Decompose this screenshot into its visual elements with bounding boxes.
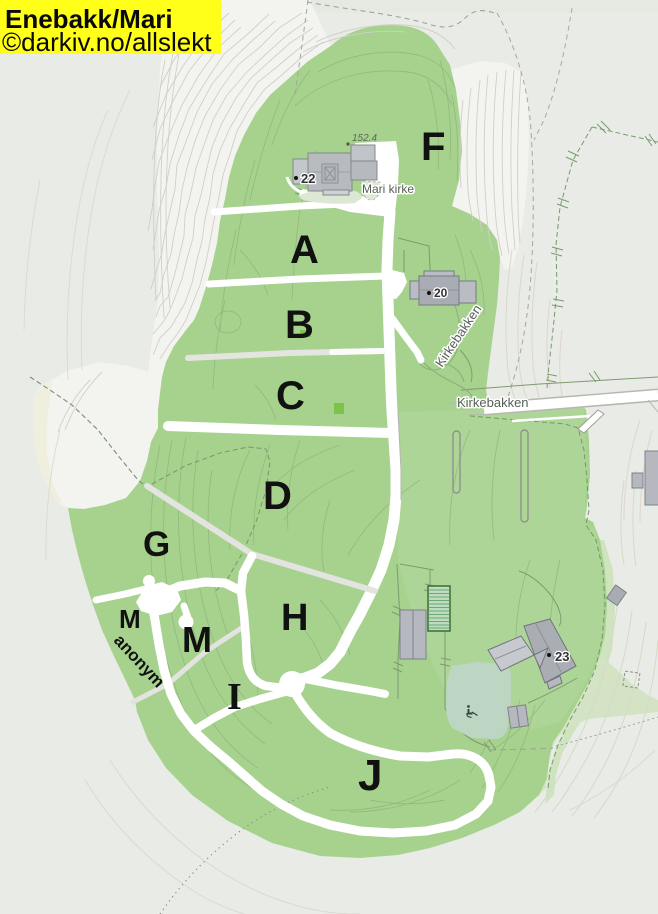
svg-text:22: 22 [301, 171, 315, 186]
svg-text:G: G [143, 525, 170, 564]
svg-text:Mari kirke: Mari kirke [362, 182, 414, 196]
svg-text:B: B [285, 303, 314, 347]
svg-text:M: M [182, 619, 212, 660]
svg-text:J: J [358, 751, 382, 800]
svg-text:M: M [119, 604, 141, 634]
svg-text:20: 20 [434, 286, 448, 300]
svg-text:C: C [276, 374, 305, 418]
svg-text:23: 23 [555, 649, 569, 664]
svg-text:I: I [227, 676, 242, 718]
svg-text:152.4: 152.4 [352, 133, 377, 144]
svg-text:Kirkebakken: Kirkebakken [457, 395, 529, 410]
svg-text:F: F [421, 125, 445, 169]
svg-text:©darkiv.no/allslekt: ©darkiv.no/allslekt [2, 27, 212, 57]
svg-text:A: A [290, 228, 319, 272]
svg-text:H: H [281, 597, 308, 639]
svg-text:D: D [263, 474, 292, 518]
